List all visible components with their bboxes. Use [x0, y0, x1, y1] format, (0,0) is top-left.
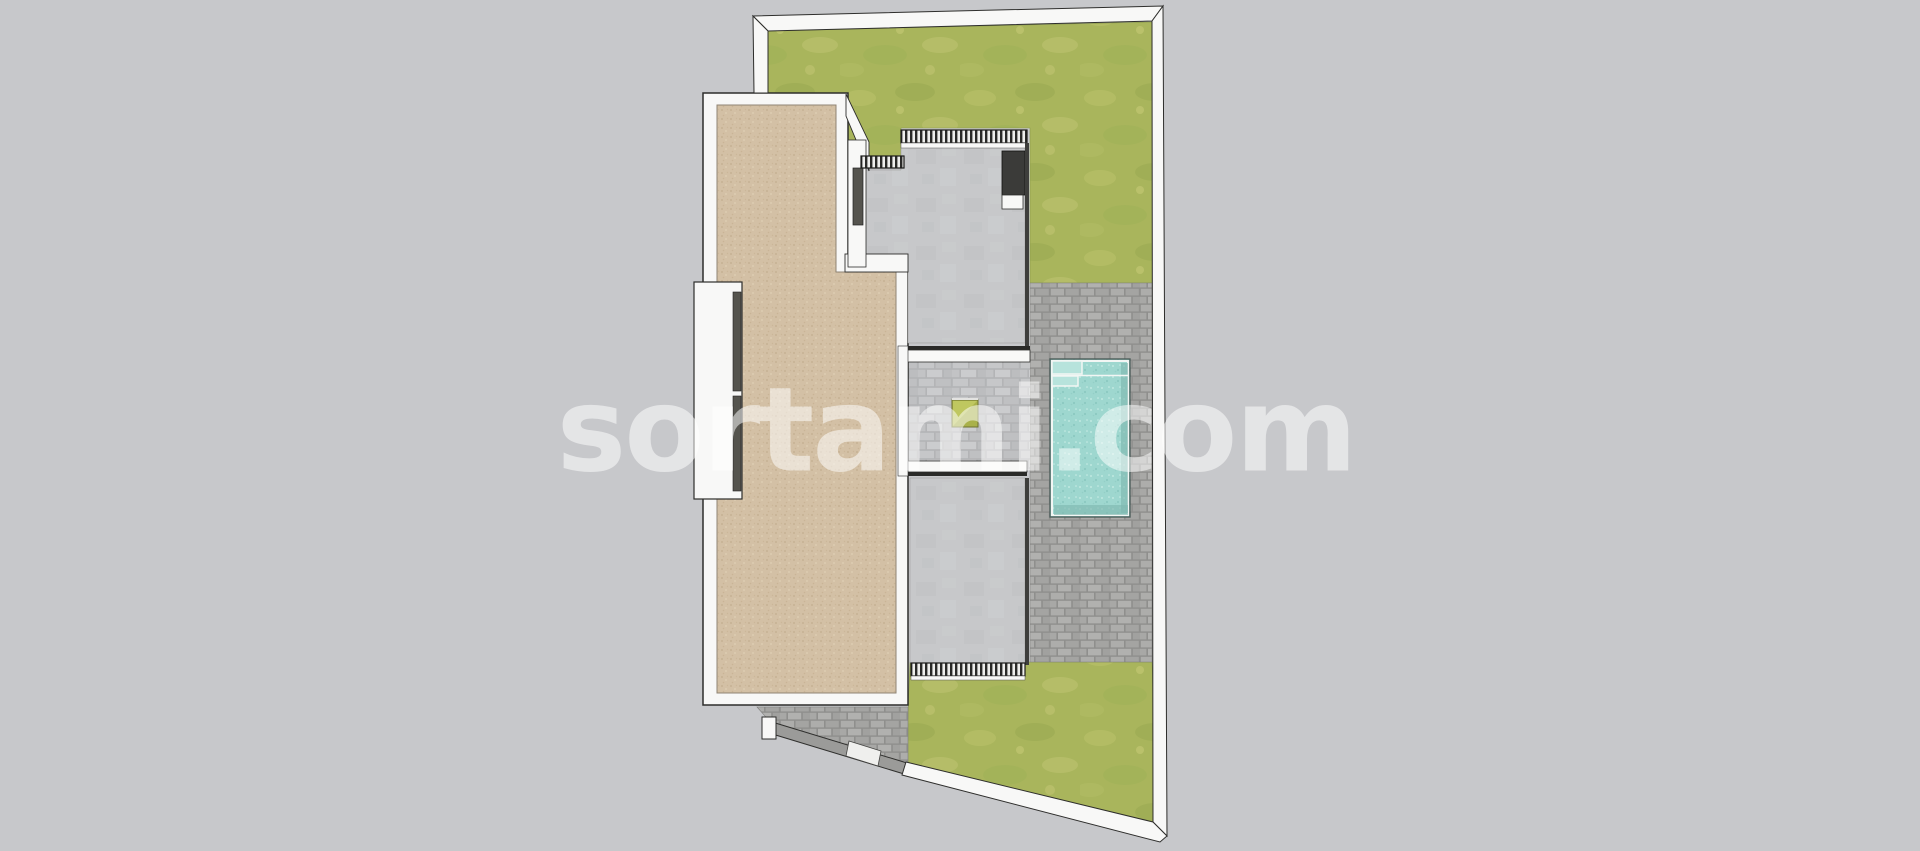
site-plan-canvas: sortami.com	[0, 0, 1920, 851]
railing-south-curb	[911, 676, 1025, 680]
gate-post	[762, 717, 776, 739]
door-slot-upper	[733, 292, 741, 391]
railing-step-west	[861, 156, 904, 168]
site-plan-drawing	[0, 0, 1920, 851]
railing-north-curb	[901, 143, 1027, 148]
patio-south-floor	[910, 478, 1025, 663]
courtyard-west-wall	[898, 346, 908, 476]
swimming-pool	[1050, 359, 1130, 517]
railing-south	[911, 663, 1025, 676]
pool-step-1	[1052, 361, 1082, 374]
patio-north-east-wall	[1025, 143, 1029, 346]
window-slot	[853, 168, 863, 225]
courtyard-north-fence-line	[903, 346, 1030, 350]
courtyard-north-wall	[903, 350, 1030, 362]
dark-fixture-box	[1002, 151, 1025, 195]
pool-depth-shadow-south	[1054, 505, 1128, 515]
courtyard-south-wall	[905, 461, 1027, 472]
railing-north	[901, 130, 1027, 143]
pool-step-2	[1052, 376, 1078, 386]
fixture-base-panel	[1002, 195, 1023, 209]
pool-depth-shadow-east	[1121, 363, 1128, 513]
planter-box-edge	[952, 398, 978, 400]
patio-south-east-wall	[1025, 478, 1029, 665]
door-slot-lower	[733, 396, 741, 491]
courtyard-south-fence-line	[905, 472, 1027, 476]
